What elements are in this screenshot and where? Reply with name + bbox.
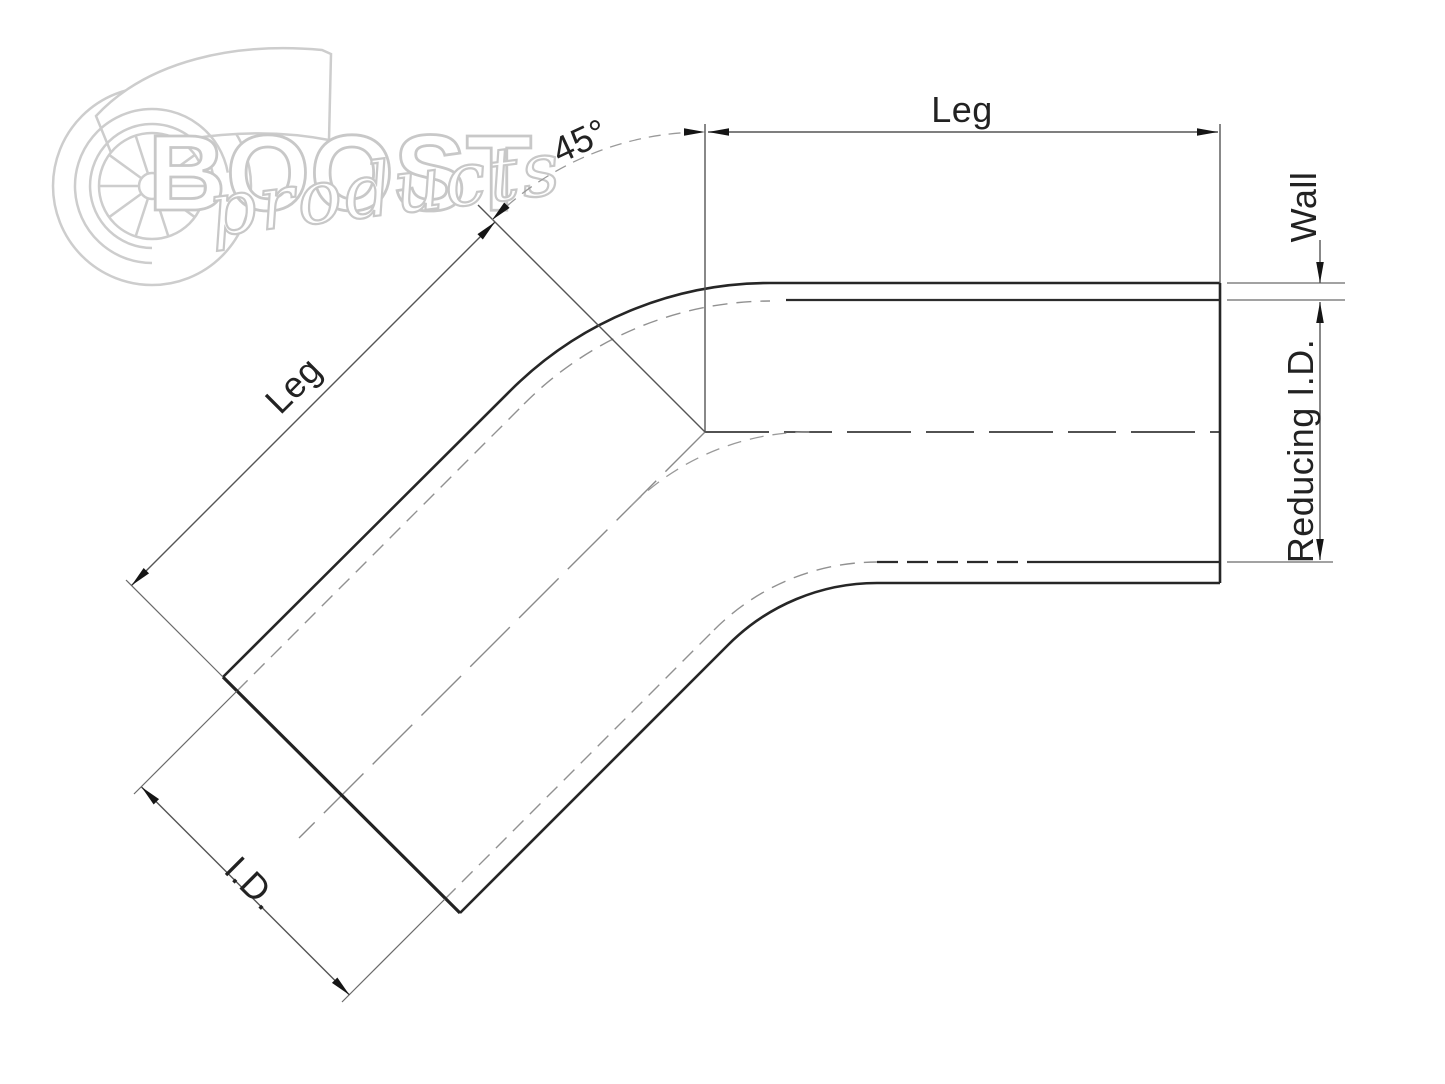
centerlines [299, 432, 1219, 838]
centerline-left-leg [299, 432, 705, 838]
arrowhead-angle-top [684, 128, 705, 136]
extension-line-id-lower [342, 899, 445, 1002]
watermark-logo: BOOST products [53, 48, 567, 285]
label-id: I.D. [217, 848, 287, 918]
elbow-outline [223, 283, 1220, 913]
label-leg-top: Leg [931, 89, 993, 130]
bore-hidden-lines [237, 301, 877, 899]
miter-line [478, 205, 705, 432]
bore-line-lower-right [445, 630, 714, 899]
label-leg-left: Leg [257, 349, 330, 422]
extension-line-end-face [126, 580, 223, 677]
diagram-canvas: BOOST products [0, 0, 1445, 1084]
outer-edge-bottom [460, 583, 1220, 913]
arrowhead-leg-top-right [1197, 128, 1218, 136]
bore-arc-upper [524, 301, 770, 404]
elbow-diagram: BOOST products [0, 0, 1445, 1084]
label-wall: Wall [1283, 172, 1324, 243]
outer-edge-top [223, 283, 1220, 677]
centerline-bend-arc [631, 432, 810, 506]
bore-line-upper-left [237, 404, 524, 691]
extension-line-id-upper [134, 691, 237, 794]
bore-arc-lower [714, 562, 877, 630]
arrowhead-wall-down [1316, 262, 1324, 283]
label-reducing-id: Reducing I.D. [1280, 339, 1321, 564]
arrowhead-reducing-up [1316, 302, 1324, 323]
arrowhead-leg-top-left [708, 128, 729, 136]
